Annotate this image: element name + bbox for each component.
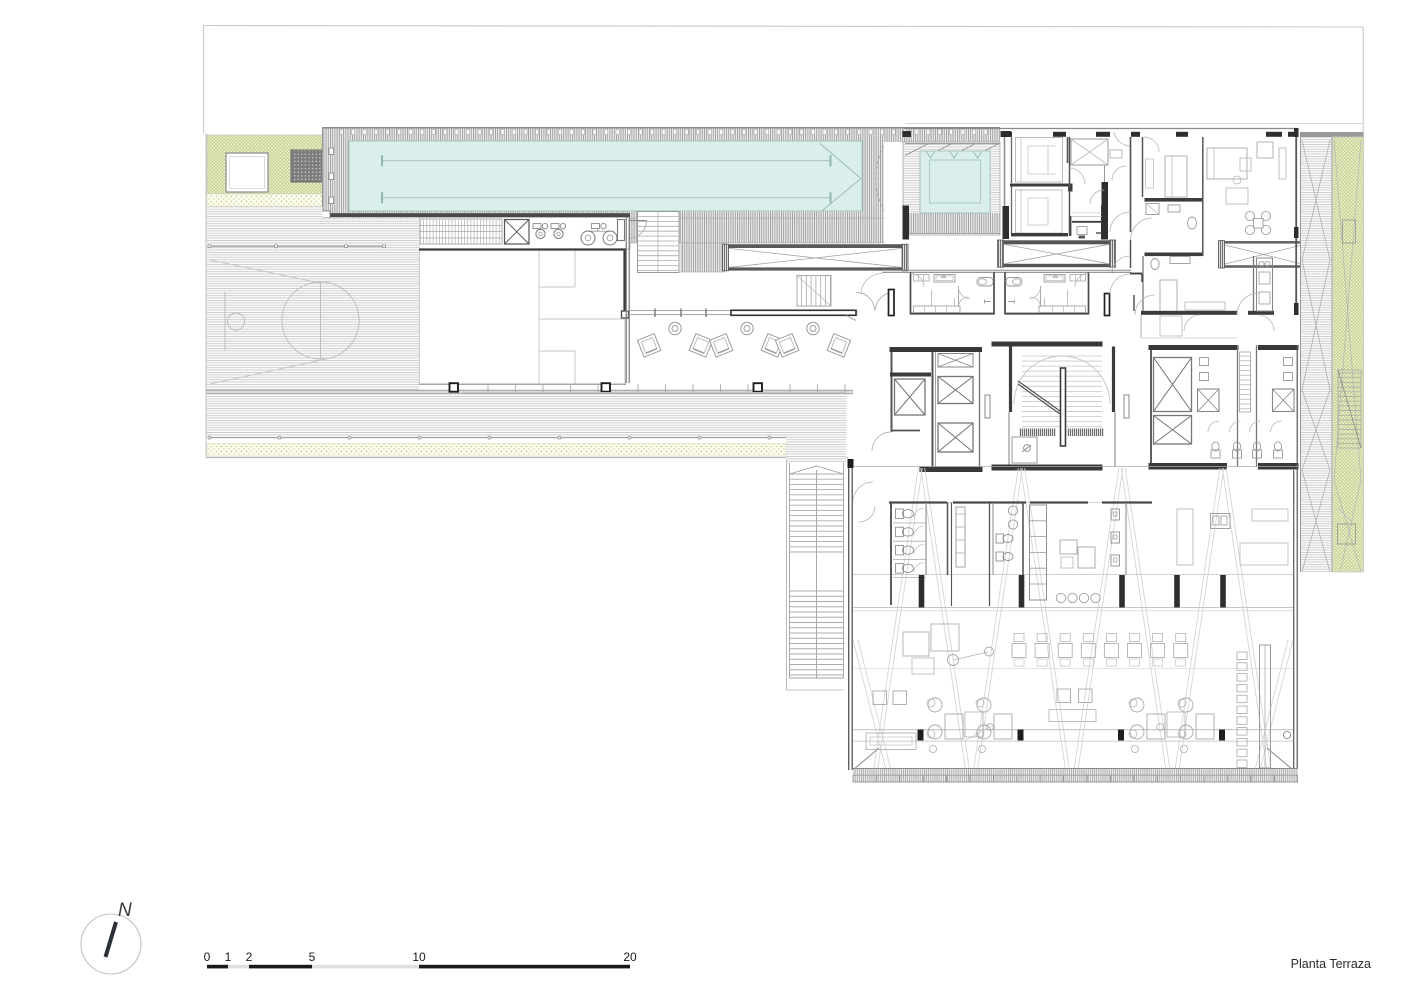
svg-text:10: 10 — [412, 950, 426, 964]
svg-text:5: 5 — [309, 950, 316, 964]
svg-text:2: 2 — [246, 950, 253, 964]
svg-text:1: 1 — [225, 950, 232, 964]
svg-text:0: 0 — [204, 950, 211, 964]
svg-text:N: N — [118, 900, 132, 921]
svg-text:20: 20 — [623, 950, 637, 964]
svg-text:Planta Terraza: Planta Terraza — [1291, 957, 1371, 971]
